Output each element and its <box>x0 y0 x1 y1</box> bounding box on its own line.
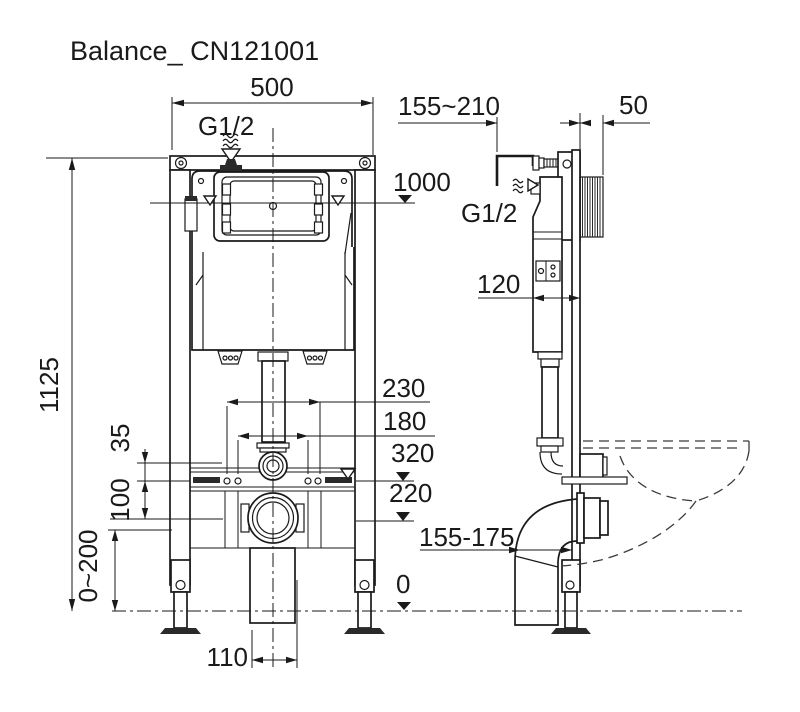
level-arrow-icon <box>396 512 410 521</box>
dim-frame-height: 1125 <box>34 357 64 413</box>
dim-fixing-rail-height: 320 <box>391 438 434 468</box>
dim-cistern-depth: 120 <box>477 269 520 299</box>
wall-section <box>580 177 603 237</box>
dim-inlet-thread-front: G1/2 <box>198 111 254 141</box>
left-foot <box>160 560 201 634</box>
dim-inlet-thread-side: G1/2 <box>461 198 517 228</box>
dim-drain-box-width: 110 <box>207 642 248 672</box>
dim-flush-plate-height: 1000 <box>393 167 451 197</box>
dim-installation-depth: 155~210 <box>398 91 500 121</box>
drawing-canvas: Balance_ CN121001 <box>0 0 800 712</box>
side-latch-cap <box>185 196 197 201</box>
side-foot <box>551 560 591 634</box>
bowl-fixing-rod <box>562 477 627 484</box>
dim-outlet-height: 220 <box>389 478 432 508</box>
dim-frame-width: 500 <box>250 72 293 102</box>
dim-wall-thickness: 50 <box>619 90 648 120</box>
foot-plate <box>551 628 591 634</box>
drawing-title: Balance_ CN121001 <box>70 36 319 66</box>
side-latch <box>185 199 197 231</box>
dim-fixing-spacing-outer: 230 <box>382 373 425 403</box>
right-foot <box>344 560 385 634</box>
corner-screw-icon <box>360 158 371 169</box>
technical-drawing-page: Balance_ CN121001 <box>0 0 800 712</box>
front-view: 500 G1/2 1125 35 100 0~200 <box>34 72 451 672</box>
outlet-connector <box>577 493 608 543</box>
foot-plate <box>160 628 201 634</box>
dim-flush-bend-offset: 35 <box>105 424 135 453</box>
dim-floor-level: 0 <box>396 569 410 599</box>
dim-leg-adjustment: 0~200 <box>73 529 103 602</box>
foot-plate <box>344 628 385 634</box>
level-indicator <box>536 261 560 281</box>
dim-rail-to-outlet: 100 <box>105 478 135 521</box>
level-arrow-icon <box>397 602 411 610</box>
corner-screw-icon <box>176 158 187 169</box>
cistern-side-profile <box>531 177 562 352</box>
flush-pipe-stub <box>580 454 603 478</box>
dim-outlet-projection: 155-175 <box>419 522 514 552</box>
flush-plate-window <box>214 172 329 241</box>
dim-fixing-spacing-inner: 180 <box>383 406 426 436</box>
